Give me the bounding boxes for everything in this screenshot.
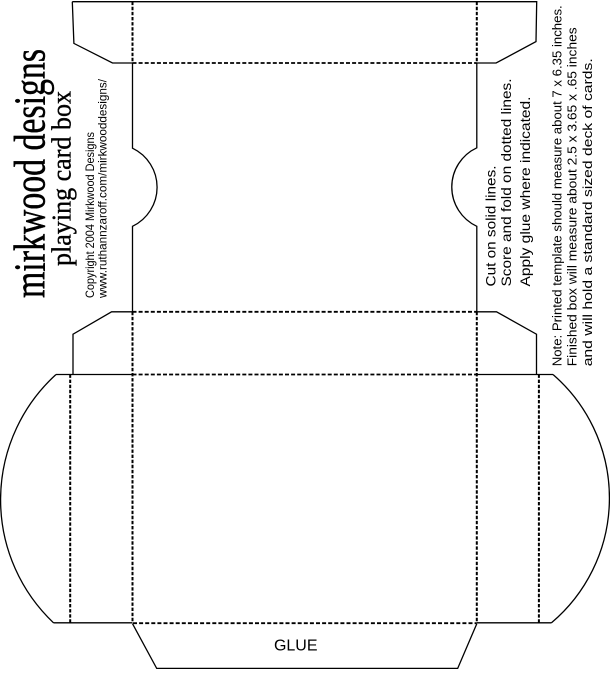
svg-text:Apply glue where indicated.: Apply glue where indicated. (518, 97, 533, 287)
svg-text:Finished box will measure abou: Finished box will measure about 2.5 x 3.… (564, 27, 579, 367)
svg-text:Note: Printed template should: Note: Printed template should measure ab… (549, 5, 564, 366)
svg-text:playing card box: playing card box (47, 91, 77, 266)
svg-text:and will hold a standard sized: and will hold a standard sized deck of c… (580, 58, 595, 366)
svg-text:www.ruthannzaroff.com/mirkwood: www.ruthannzaroff.com/mirkwooddesigns/ (96, 78, 110, 299)
svg-text:GLUE: GLUE (274, 638, 318, 655)
svg-text:Cut on solid lines.: Cut on solid lines. (484, 166, 499, 287)
svg-text:Score and fold on dotted lines: Score and fold on dotted lines. (499, 78, 514, 286)
